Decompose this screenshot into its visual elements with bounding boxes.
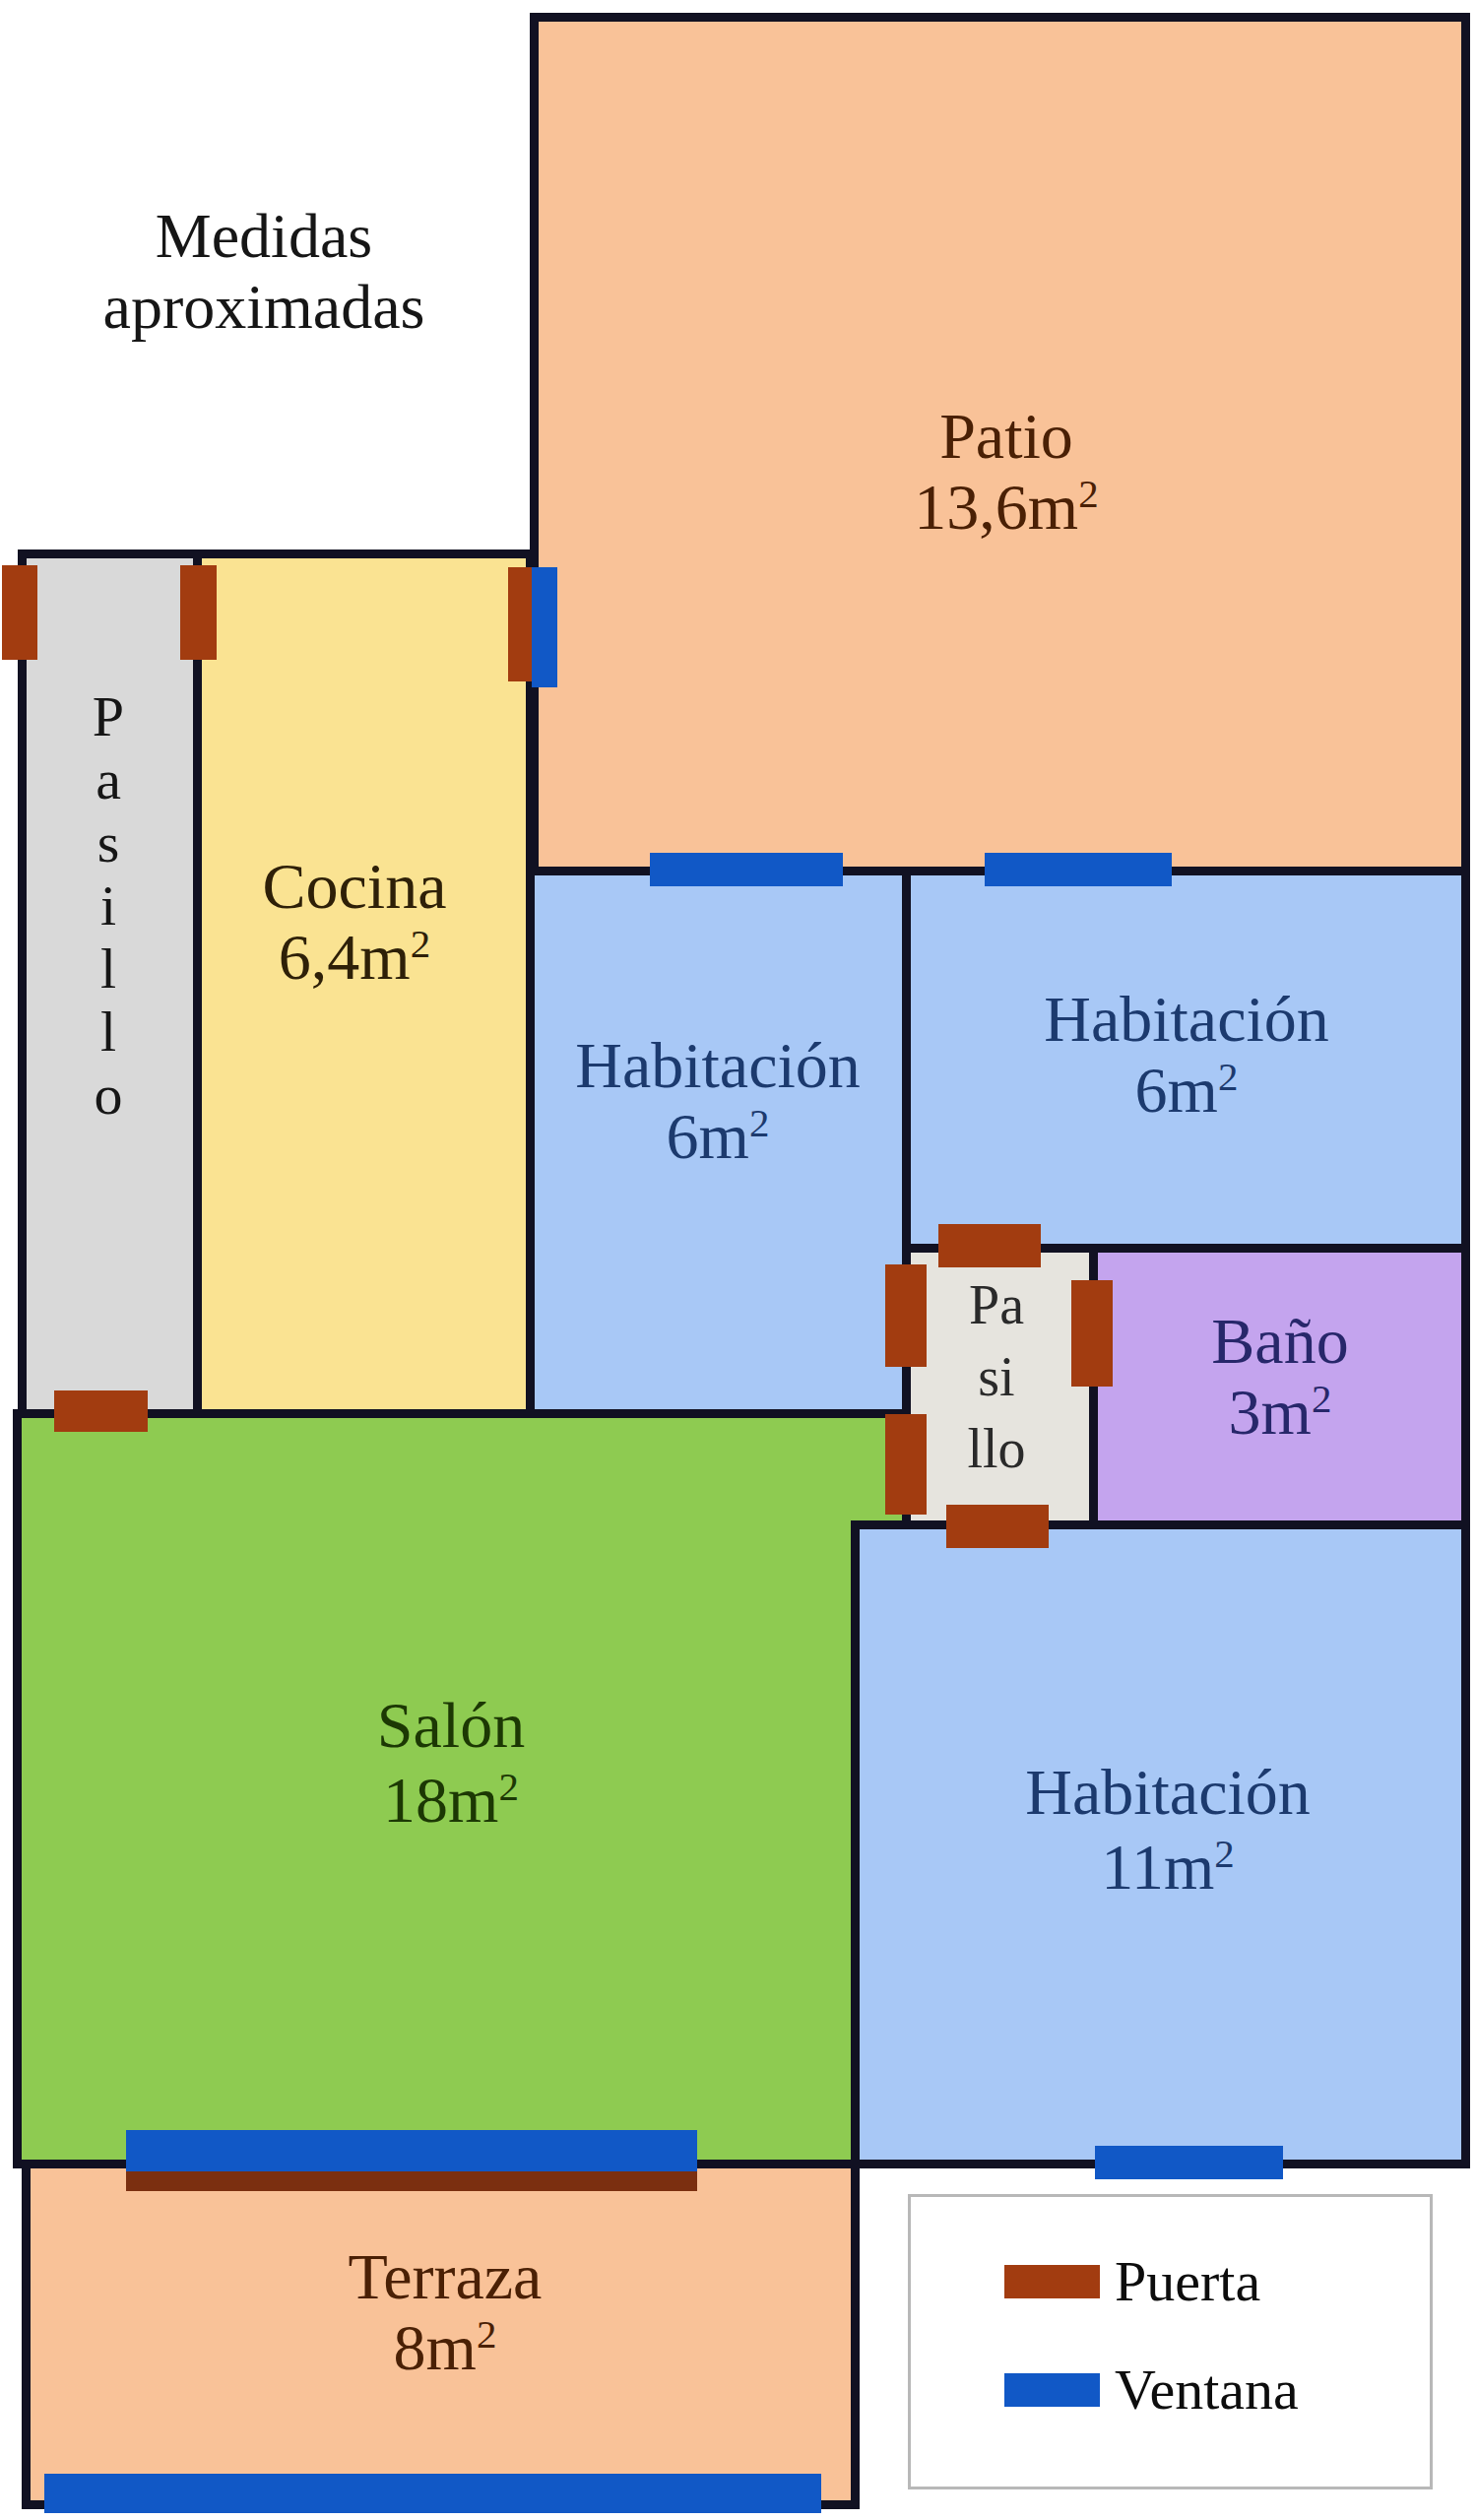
label-pasillo-left: P a s i l l o xyxy=(49,685,167,1127)
pasillo-letter: l xyxy=(49,937,167,1001)
label-habitacion-6-left: Habitación 6m2 xyxy=(511,1030,925,1181)
pasillo-letter: P xyxy=(49,685,167,748)
pasillo-small-line: llo xyxy=(918,1413,1075,1485)
label-habitacion-11: Habitación 11m2 xyxy=(951,1755,1384,1913)
door-icon-cocina-patio xyxy=(508,567,532,681)
window-icon-terraza-bottom xyxy=(44,2474,821,2513)
room-area: 6m xyxy=(667,1100,749,1172)
pasillo-letter: l xyxy=(49,1001,167,1064)
room-area-sup: 2 xyxy=(411,922,430,966)
legend-window-label: Ventana xyxy=(1115,2361,1299,2419)
door-icon-pasillo-small-right xyxy=(1071,1280,1113,1387)
room-area-sup: 2 xyxy=(477,2312,496,2357)
window-icon-habitacion-6-left xyxy=(650,853,843,886)
legend-door-swatch xyxy=(1004,2265,1100,2298)
window-icon-habitacion-11 xyxy=(1095,2146,1283,2179)
pasillo-letter: o xyxy=(49,1064,167,1127)
window-shadow-salon-terraza xyxy=(126,2171,697,2191)
room-name: Habitación xyxy=(1025,1756,1311,1828)
room-area-sup: 2 xyxy=(498,1765,518,1809)
door-icon-pasillo-cocina xyxy=(180,565,217,660)
room-name: Habitación xyxy=(575,1029,861,1101)
room-name: Salón xyxy=(377,1689,525,1761)
room-area-sup: 2 xyxy=(1218,1055,1238,1099)
room-area-sup: 2 xyxy=(1214,1832,1234,1876)
legend-box xyxy=(908,2194,1433,2489)
label-salon: Salón 18m2 xyxy=(274,1688,628,1846)
legend-door-label: Puerta xyxy=(1115,2253,1260,2310)
room-area: 18m xyxy=(383,1764,498,1836)
legend-window-swatch xyxy=(1004,2373,1100,2407)
pasillo-small-line: Pa xyxy=(918,1269,1075,1341)
label-pasillo-small: Pa si llo xyxy=(918,1269,1075,1485)
room-name: Baño xyxy=(1211,1305,1348,1377)
window-icon-patio-left xyxy=(532,567,557,687)
room-area-sup: 2 xyxy=(1312,1377,1331,1421)
room-area: 6,4m xyxy=(279,921,411,993)
pasillo-small-line: si xyxy=(918,1341,1075,1413)
room-area: 6m xyxy=(1135,1054,1218,1126)
plan-note: Medidas aproximadas xyxy=(37,201,490,343)
room-name: Terraza xyxy=(349,2240,543,2312)
door-icon-pasillo-exterior xyxy=(2,565,37,660)
room-area: 3m xyxy=(1229,1376,1312,1448)
room-area-sup: 2 xyxy=(749,1101,769,1145)
room-name: Habitación xyxy=(1044,983,1329,1055)
plan-note-line2: aproximadas xyxy=(103,272,425,342)
pasillo-letter: i xyxy=(49,874,167,937)
floor-plan: Medidas aproximadas Patio 13,6m2 Cocina … xyxy=(0,0,1477,2520)
door-icon-pasillo-salon xyxy=(54,1390,148,1432)
label-patio: Patio 13,6m2 xyxy=(760,401,1252,551)
room-name: Patio xyxy=(939,400,1073,472)
door-icon-pasillo-small-bottom xyxy=(946,1505,1049,1548)
label-terraza: Terraza 8m2 xyxy=(268,2241,622,2392)
plan-note-line1: Medidas xyxy=(156,201,372,271)
room-area-sup: 2 xyxy=(1078,472,1098,516)
room-name: Cocina xyxy=(263,850,447,922)
room-area: 11m xyxy=(1101,1831,1214,1903)
window-icon-salon-terraza xyxy=(126,2130,697,2171)
window-icon-habitacion-6-right xyxy=(985,853,1172,886)
label-habitacion-6-right: Habitación 6m2 xyxy=(980,984,1393,1134)
room-area: 8m xyxy=(394,2311,477,2383)
pasillo-letter: s xyxy=(49,811,167,874)
door-icon-pasillo-small-top xyxy=(938,1224,1041,1267)
pasillo-letter: a xyxy=(49,748,167,811)
label-bano: Baño 3m2 xyxy=(1132,1306,1428,1456)
label-cocina: Cocina 6,4m2 xyxy=(187,851,522,1002)
room-area: 13,6m xyxy=(914,471,1078,543)
